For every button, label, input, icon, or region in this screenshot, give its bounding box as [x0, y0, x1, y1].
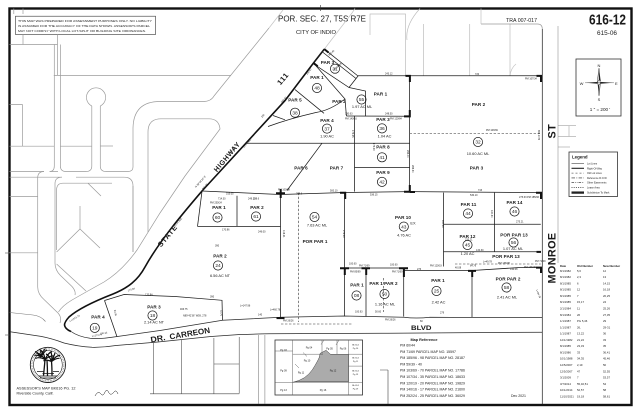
- svg-text:720: 720: [475, 73, 480, 76]
- svg-text:58: 58: [504, 285, 510, 291]
- svg-text:THIS MAP WAS PREPARED FOR ASSE: THIS MAP WAS PREPARED FOR ASSESSMENT PUR…: [18, 19, 152, 23]
- svg-text:84.76: 84.76: [470, 265, 477, 268]
- svg-text:POR PAR 2: POR PAR 2: [496, 277, 521, 282]
- svg-text:18: 18: [150, 313, 156, 319]
- svg-text:Lot Lines: Lot Lines: [587, 163, 598, 166]
- svg-text:MAY NOT COMPLY WITH LOCAL LOT-: MAY NOT COMPLY WITH LOCAL LOT-SPLIT OR B…: [18, 29, 146, 33]
- svg-text:45,46: 45,46: [603, 357, 610, 361]
- svg-text:41: 41: [379, 155, 385, 161]
- svg-text:8/1/1982: 8/1/1982: [560, 275, 571, 279]
- svg-text:2.42 AC: 2.42 AC: [432, 300, 446, 305]
- svg-text:PAR 3: PAR 3: [321, 60, 335, 65]
- svg-text:POR PAR 13: POR PAR 13: [500, 233, 528, 238]
- svg-text:19,18: 19,18: [577, 394, 584, 398]
- svg-text:140: 140: [258, 314, 263, 317]
- svg-text:CITY OF INDIO: CITY OF INDIO: [296, 30, 336, 36]
- svg-text:33: 33: [577, 350, 581, 354]
- svg-text:33: 33: [603, 338, 607, 342]
- svg-text:3/7/2014: 3/7/2014: [560, 382, 571, 386]
- svg-text:L=49.78: L=49.78: [483, 261, 493, 264]
- svg-text:19: 19: [92, 326, 98, 332]
- svg-text:E: E: [615, 81, 618, 86]
- svg-text:Lease Area: Lease Area: [587, 187, 600, 190]
- svg-text:PAR 1: PAR 1: [350, 283, 364, 288]
- svg-text:54: 54: [603, 382, 607, 386]
- svg-text:Date: Date: [560, 264, 567, 268]
- svg-text:PM 136/98: PM 136/98: [524, 266, 536, 269]
- svg-text:20,25: 20,25: [603, 294, 610, 298]
- svg-text:PAR 14: PAR 14: [506, 200, 522, 205]
- svg-text:390: 390: [210, 296, 215, 299]
- svg-text:32: 32: [475, 140, 481, 146]
- svg-text:2,19: 2,19: [577, 363, 583, 367]
- svg-text:PAR 7: PAR 7: [330, 166, 344, 171]
- svg-text:Riverside County, Calif.: Riverside County, Calif.: [17, 392, 54, 396]
- svg-text:61: 61: [253, 214, 259, 220]
- svg-text:37: 37: [324, 126, 330, 132]
- svg-text:PAR 3: PAR 3: [376, 117, 390, 122]
- svg-text:12/1/1982: 12/1/1982: [560, 338, 573, 342]
- svg-text:72.75: 72.75: [219, 310, 223, 317]
- svg-text:21,22: 21,22: [577, 338, 584, 342]
- svg-text:PM 100/98: PM 100/98: [278, 189, 290, 192]
- svg-text:Pg 11: Pg 11: [298, 372, 305, 375]
- svg-text:1.07 AC ML: 1.07 AC ML: [503, 246, 524, 251]
- svg-text:170.84: 170.84: [145, 294, 153, 297]
- svg-text:35: 35: [603, 344, 607, 348]
- svg-text:Pg 05: Pg 05: [326, 348, 333, 351]
- svg-text:448.21: 448.21: [282, 230, 285, 238]
- svg-text:PAR 1: PAR 1: [431, 278, 445, 283]
- svg-text:466.75: 466.75: [180, 308, 188, 311]
- svg-text:Bk 614: Bk 614: [352, 385, 359, 387]
- svg-text:PM 140/16: PM 140/16: [345, 118, 357, 121]
- svg-text:52,57: 52,57: [577, 388, 584, 392]
- svg-text:13: 13: [603, 275, 607, 279]
- svg-text:1.90 AC: 1.90 AC: [320, 134, 334, 139]
- svg-text:26,: 26,: [577, 325, 581, 329]
- svg-text:L=147.96: L=147.96: [240, 305, 251, 308]
- svg-text:8/1/1985: 8/1/1985: [560, 300, 571, 304]
- svg-text:52,55: 52,55: [603, 369, 610, 373]
- svg-text:PAR 6: PAR 6: [294, 166, 308, 171]
- svg-text:330.63: 330.63: [345, 113, 353, 116]
- svg-text:2.14 AC NT: 2.14 AC NT: [144, 320, 165, 325]
- svg-text:Legend: Legend: [572, 155, 588, 160]
- svg-text:PM 107/34 - 35 PARCEL MAP N: PM 107/34 - 35 PARCEL MAP NO. 18633: [400, 375, 465, 379]
- svg-text:315.05: 315.05: [226, 193, 234, 196]
- svg-text:26: 26: [577, 313, 581, 317]
- svg-text:PAR 2: PAR 2: [472, 102, 486, 107]
- svg-text:08: 08: [354, 293, 360, 299]
- svg-text:Right-Of-Way: Right-Of-Way: [587, 167, 603, 170]
- svg-text:276: 276: [417, 268, 422, 271]
- svg-text:1/1/1987: 1/1/1987: [560, 319, 571, 323]
- svg-text:24: 24: [603, 300, 607, 304]
- svg-text:Pg 19: Pg 19: [353, 389, 359, 391]
- svg-text:2/1/1984: 2/1/1984: [560, 307, 571, 311]
- svg-text:288.34: 288.34: [411, 165, 414, 173]
- svg-text:45: 45: [465, 243, 471, 249]
- svg-text:12/5/2007: 12/5/2007: [560, 369, 573, 373]
- svg-text:134.30: 134.30: [476, 249, 484, 252]
- svg-text:PAR 4: PAR 4: [320, 118, 334, 123]
- svg-text:PM 252/24 - 25 PARCEL MAP NO: PM 252/24 - 25 PARCEL MAP NO. 36029: [400, 394, 465, 398]
- svg-text:PAR 9: PAR 9: [376, 170, 390, 175]
- svg-text:140.08: 140.08: [510, 268, 518, 271]
- svg-text:134.34: 134.34: [490, 210, 493, 218]
- svg-text:43: 43: [401, 224, 407, 230]
- svg-text:PM 85/99: PM 85/99: [350, 271, 361, 274]
- svg-text:MONROE: MONROE: [547, 233, 559, 284]
- svg-text:PM 71/69: PM 71/69: [359, 265, 370, 268]
- svg-text:Other Easements: Other Easements: [587, 182, 607, 185]
- svg-text:276.30: 276.30: [342, 230, 345, 238]
- svg-text:295.44: 295.44: [406, 150, 409, 158]
- svg-text:Pg 13: Pg 13: [280, 389, 287, 392]
- svg-text:PM 103/69: PM 103/69: [486, 129, 498, 132]
- svg-text:PM 136/98: PM 136/98: [498, 262, 510, 265]
- svg-text:PAR 1: PAR 1: [310, 75, 324, 80]
- svg-text:PAR 1 PAR 2: PAR 1 PAR 2: [369, 281, 398, 286]
- svg-text:EX: EX: [410, 221, 416, 226]
- svg-text:3/1/2009: 3/1/2009: [560, 376, 571, 380]
- svg-text:PG 5,46: PG 5,46: [577, 319, 588, 323]
- svg-text:500.10: 500.10: [330, 190, 338, 193]
- svg-text:56: 56: [511, 240, 517, 246]
- svg-text:743: 743: [478, 189, 483, 192]
- svg-text:13,22: 13,22: [577, 332, 584, 336]
- svg-text:Pg 09: Pg 09: [280, 370, 287, 373]
- svg-text:14,15: 14,15: [603, 281, 610, 285]
- svg-text:12: 12: [577, 288, 581, 292]
- svg-text:40.08: 40.08: [455, 267, 462, 270]
- svg-text:7.63 AC ML: 7.63 AC ML: [307, 223, 328, 228]
- svg-text:36: 36: [603, 332, 607, 336]
- svg-text:1/1/1987: 1/1/1987: [560, 325, 571, 329]
- svg-text:PM 71/69: PM 71/69: [392, 271, 403, 274]
- svg-text:Pg 10: Pg 10: [353, 348, 359, 350]
- svg-text:27,35: 27,35: [603, 313, 610, 317]
- svg-text:50: 50: [382, 292, 388, 298]
- svg-text:10/1/2014: 10/1/2014: [560, 388, 573, 392]
- svg-text:Old Lot Lines: Old Lot Lines: [587, 172, 602, 175]
- svg-text:8/1/1985: 8/1/1985: [560, 288, 571, 292]
- svg-text:25: 25: [434, 289, 440, 295]
- svg-text:175.00: 175.00: [372, 143, 375, 151]
- svg-text:PM 26/26: PM 26/26: [385, 319, 396, 322]
- svg-text:8/1/1984: 8/1/1984: [560, 313, 571, 317]
- svg-text:714.30: 714.30: [218, 198, 226, 201]
- svg-text:11/10/2021: 11/10/2021: [560, 394, 574, 398]
- svg-text:PM 26/26: PM 26/26: [283, 320, 294, 323]
- svg-text:1.16 AC ML: 1.16 AC ML: [375, 302, 396, 307]
- svg-text:New Number: New Number: [603, 264, 621, 268]
- svg-text:11: 11: [577, 307, 580, 311]
- svg-text:100.93: 100.93: [355, 311, 363, 314]
- svg-text:ST: ST: [547, 124, 559, 139]
- svg-text:8/1/1982: 8/1/1982: [560, 269, 571, 273]
- svg-text:PM 120/19: PM 120/19: [430, 265, 442, 268]
- svg-text:12/5/2007: 12/5/2007: [560, 363, 573, 367]
- svg-text:170.86: 170.86: [222, 229, 230, 232]
- svg-text:POR. SEC. 27, T5S R7E: POR. SEC. 27, T5S R7E: [278, 14, 366, 24]
- svg-text:536.15: 536.15: [370, 194, 378, 197]
- svg-text:S: S: [598, 97, 601, 102]
- svg-text:530.10: 530.10: [470, 194, 478, 197]
- svg-text:616-12: 616-12: [589, 12, 626, 29]
- svg-text:1 " = 200 ': 1 " = 200 ': [590, 107, 611, 112]
- svg-text:Pg 04: Pg 04: [306, 347, 313, 350]
- svg-text:1.04 AC: 1.04 AC: [378, 134, 392, 139]
- svg-text:PM 71/69 PARCEL MAP NO. 155: PM 71/69 PARCEL MAP NO. 15597: [400, 350, 456, 354]
- svg-text:Bk 614: Bk 614: [352, 358, 359, 360]
- svg-text:POR PAR 13: POR PAR 13: [492, 254, 520, 259]
- svg-text:PM 71/09: PM 71/09: [535, 260, 546, 263]
- svg-text:PM 107/34: PM 107/34: [525, 78, 537, 81]
- svg-text:L=460.76: L=460.76: [270, 309, 281, 312]
- svg-text:298.6: 298.6: [253, 198, 260, 201]
- svg-text:Map Reference: Map Reference: [410, 338, 437, 342]
- svg-text:100.60: 100.60: [390, 264, 398, 267]
- svg-text:PAR 3: PAR 3: [470, 166, 484, 171]
- svg-text:248.50: 248.50: [385, 113, 393, 116]
- svg-text:8/1/1985: 8/1/1985: [560, 344, 571, 348]
- svg-text:243.12: 243.12: [385, 73, 393, 76]
- svg-text:16,18: 16,18: [603, 288, 610, 292]
- svg-text:2.41 AC ML: 2.41 AC ML: [497, 295, 518, 300]
- svg-text:275.63 PM 185/96: 275.63 PM 185/96: [519, 196, 540, 199]
- svg-text:659.1470: 659.1470: [537, 130, 540, 141]
- svg-text:PAR 8: PAR 8: [376, 145, 390, 150]
- svg-text:54: 54: [312, 215, 318, 221]
- svg-text:8/1/1985: 8/1/1985: [560, 294, 571, 298]
- svg-text:PM 185/96 - 98 PARCEL MAP N: PM 185/96 - 98 PARCEL MAP NO. 28187: [400, 356, 465, 360]
- svg-text:TRA 007-017: TRA 007-017: [506, 18, 537, 24]
- svg-text:1.97 AC ML: 1.97 AC ML: [352, 104, 373, 109]
- svg-text:PM 140/16 - 17 PARCEL MAP N: PM 140/16 - 17 PARCEL MAP NO. 21600: [400, 388, 465, 392]
- svg-text:23,33: 23,33: [577, 344, 584, 348]
- svg-text:5,6: 5,6: [577, 269, 581, 273]
- svg-text:275.21: 275.21: [516, 221, 524, 224]
- svg-text:PAR 2: PAR 2: [213, 254, 227, 259]
- svg-text:50.60: 50.60: [375, 311, 382, 314]
- svg-text:44: 44: [465, 211, 471, 217]
- svg-text:29: 29: [603, 319, 607, 323]
- svg-text:10/1/1988: 10/1/1988: [560, 357, 573, 361]
- svg-text:PM 120/84: PM 120/84: [390, 118, 402, 121]
- svg-text:233.21: 233.21: [465, 239, 473, 242]
- svg-text:47: 47: [577, 369, 581, 373]
- svg-text:46: 46: [512, 209, 518, 215]
- svg-text:Pg 06: Pg 06: [340, 348, 347, 351]
- svg-text:1/1/1987: 1/1/1987: [560, 332, 571, 336]
- svg-text:104.30: 104.30: [441, 220, 444, 228]
- svg-text:29-31: 29-31: [603, 325, 611, 329]
- svg-text:55,40,51: 55,40,51: [577, 382, 588, 386]
- svg-text:PAR 10: PAR 10: [395, 215, 411, 220]
- svg-text:50: 50: [603, 363, 607, 367]
- svg-text:42: 42: [379, 180, 385, 186]
- svg-text:Pg 12: Pg 12: [330, 370, 337, 373]
- svg-text:8/1/1985: 8/1/1985: [560, 281, 571, 285]
- svg-text:48: 48: [314, 86, 320, 92]
- svg-text:Bk 614: Bk 614: [352, 345, 359, 347]
- svg-text:POR PAR 1: POR PAR 1: [303, 239, 328, 244]
- svg-text:PAR 1: PAR 1: [212, 205, 226, 210]
- svg-text:8/1/1986: 8/1/1986: [560, 350, 571, 354]
- svg-text:38: 38: [292, 110, 298, 116]
- svg-text:PM 59/39 - 40: PM 59/39 - 40: [400, 362, 422, 366]
- svg-text:N: N: [598, 63, 601, 68]
- svg-text:Old Number: Old Number: [577, 264, 594, 268]
- svg-text:Pg 13: Pg 13: [353, 374, 359, 376]
- svg-text:Bk 614: Bk 614: [352, 371, 359, 373]
- svg-text:PAR 5: PAR 5: [288, 98, 302, 103]
- svg-text:PM 103/69 - 70 PARCEL MAP N: PM 103/69 - 70 PARCEL MAP NO. 17786: [400, 369, 465, 373]
- svg-text:36,41: 36,41: [603, 350, 610, 354]
- svg-text:36: 36: [379, 126, 385, 132]
- svg-text:25,26: 25,26: [603, 307, 610, 311]
- svg-text:PM 60/44: PM 60/44: [400, 344, 415, 348]
- svg-text:PAR 3: PAR 3: [147, 305, 161, 310]
- svg-text:279: 279: [440, 312, 445, 315]
- svg-text:24: 24: [215, 263, 221, 269]
- svg-text:175.05: 175.05: [351, 130, 354, 138]
- svg-text:Pg 10: Pg 10: [304, 360, 311, 363]
- svg-text:PM 120/19 - 20 PARCEL MAP N: PM 120/19 - 20 PARCEL MAP NO. 19829: [400, 381, 465, 385]
- svg-text:10.60 AC ML: 10.60 AC ML: [467, 151, 490, 156]
- svg-text:W: W: [580, 81, 584, 86]
- svg-text:IS ASSUMED FOR THE ACCURACY OF: IS ASSUMED FOR THE ACCURACY OF THE DATA …: [18, 24, 150, 28]
- svg-text:PAR 11: PAR 11: [461, 202, 477, 207]
- svg-text:Pg 16: Pg 16: [320, 389, 327, 392]
- svg-text:288.6: 288.6: [296, 193, 303, 196]
- svg-text:55: 55: [359, 97, 365, 103]
- svg-text:N89°42'36" W59, 278: N89°42'36" W59, 278: [183, 315, 207, 318]
- svg-text:Pg 11: Pg 11: [353, 361, 359, 363]
- svg-text:Reference R.O.W: Reference R.O.W: [587, 177, 607, 180]
- svg-text:Subdivision To Mark: Subdivision To Mark: [587, 192, 610, 195]
- svg-text:246.00: 246.00: [258, 231, 266, 234]
- svg-text:ASSESSOR'S MAP BK616 PG. 12: ASSESSOR'S MAP BK616 PG. 12: [17, 387, 76, 391]
- svg-text:1.20 AC: 1.20 AC: [461, 251, 475, 256]
- svg-text:58,61: 58,61: [603, 394, 610, 398]
- svg-text:4.76 AC: 4.76 AC: [397, 233, 411, 238]
- svg-text:53,57: 53,57: [603, 376, 610, 380]
- svg-text:Pg 03: Pg 03: [280, 349, 287, 352]
- svg-text:BLVD: BLVD: [411, 325, 432, 332]
- svg-text:PAR 2: PAR 2: [250, 205, 264, 210]
- svg-text:34,35: 34,35: [577, 357, 584, 361]
- svg-text:390: 390: [215, 245, 220, 248]
- svg-text:PAR 4: PAR 4: [91, 315, 105, 320]
- svg-text:15,17: 15,17: [577, 300, 584, 304]
- svg-text:PM 250/24: PM 250/24: [210, 202, 222, 205]
- svg-text:2,3: 2,3: [577, 275, 581, 279]
- svg-text:PAR 1: PAR 1: [374, 92, 388, 97]
- svg-text:58: 58: [603, 388, 607, 392]
- svg-text:100.60: 100.60: [349, 263, 357, 266]
- svg-text:PAR 2: PAR 2: [332, 99, 346, 104]
- svg-text:12: 12: [603, 269, 607, 273]
- svg-text:6.56 AC NT: 6.56 AC NT: [210, 273, 231, 278]
- svg-text:60: 60: [215, 215, 221, 221]
- svg-text:Dec 2021: Dec 2021: [511, 394, 526, 398]
- svg-text:615-06: 615-06: [597, 30, 618, 37]
